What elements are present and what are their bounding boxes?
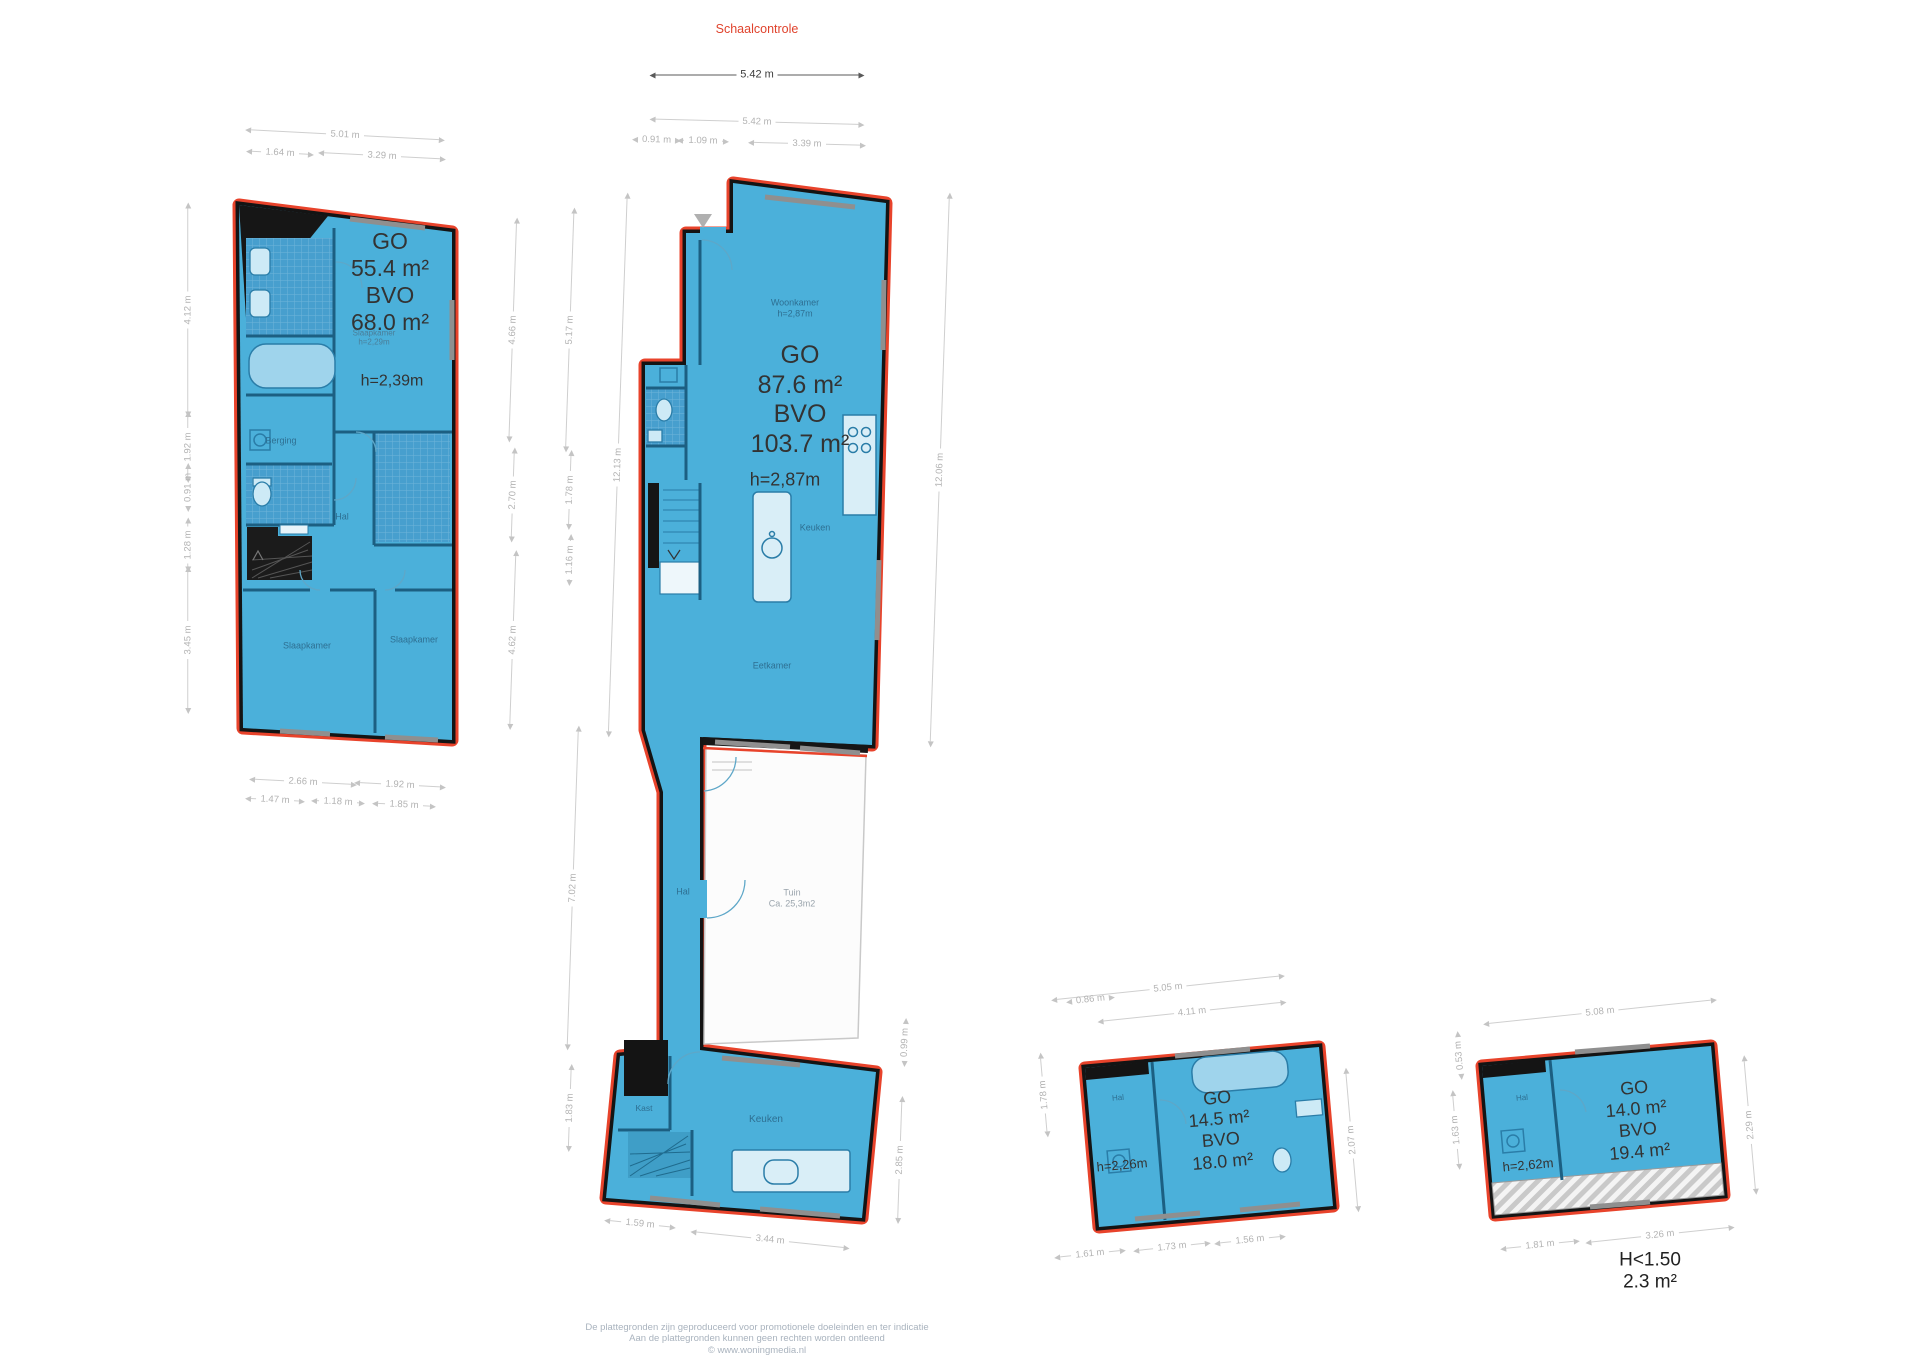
footer-disclaimer: De plattegronden zijn geproduceerd voor …	[0, 1322, 1514, 1356]
toilet-icon	[253, 482, 271, 506]
sink-icon	[648, 430, 662, 442]
bathtub-icon	[249, 344, 335, 388]
kitchen-counter	[732, 1150, 850, 1192]
floorplan-drawing	[0, 0, 1920, 1358]
sink-icon	[250, 248, 270, 275]
floorplan-page: Schaalcontrole	[0, 0, 1920, 1358]
footer-line: Aan de plattegronden kunnen geen rechten…	[0, 1333, 1514, 1344]
floor-plan-3	[1085, 1047, 1333, 1227]
sink-icon	[250, 290, 270, 317]
front-door-gap	[700, 227, 726, 239]
floor-plan-1	[239, 205, 452, 740]
souterrain-wall	[624, 1040, 668, 1096]
garden-area	[704, 748, 866, 1044]
footer-line: De plattegronden zijn geproduceerd voor …	[0, 1322, 1514, 1333]
kitchen-counter	[843, 415, 876, 515]
toilet-icon	[656, 399, 672, 421]
kitchen-island	[753, 492, 791, 602]
garden-door-gap	[696, 880, 707, 918]
floor-plan-4	[1482, 1046, 1724, 1215]
stair-wall	[648, 483, 659, 568]
footer-copyright: © www.woningmedia.nl	[0, 1345, 1514, 1356]
floor-plan-2	[606, 183, 886, 1218]
bathroom2-tiles	[374, 432, 450, 542]
bathtub-icon	[1191, 1050, 1290, 1094]
sink-icon	[1295, 1099, 1322, 1117]
entrance-marker-icon	[694, 214, 712, 228]
